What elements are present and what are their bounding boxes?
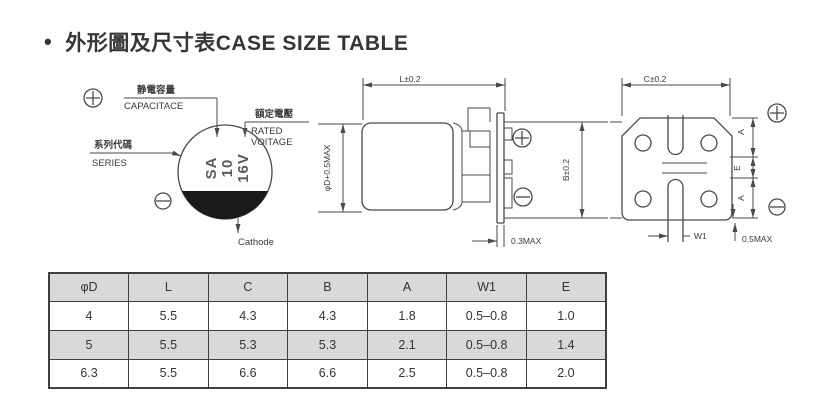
table-row: 6.3 5.5 6.6 6.6 2.5 0.5–0.8 2.0 [49, 359, 606, 388]
capacitor-side-view-diagram: L±0.2 B±0.2 [310, 70, 610, 265]
terminal-hole [701, 135, 717, 151]
dim-label-A-bottom: A [736, 195, 746, 201]
dim-label-L: L±0.2 [399, 74, 420, 84]
table-cell: 2.1 [367, 330, 447, 359]
seating-plate [497, 113, 512, 223]
minus-polarity-icon [155, 193, 171, 209]
table-cell: 4.3 [208, 301, 288, 330]
table-cell: 0.5–0.8 [447, 330, 527, 359]
table-cell: 6.3 [49, 359, 129, 388]
rated-voltage-label-cn: 額定電壓 [254, 108, 294, 120]
terminal-hole [635, 191, 651, 207]
minus-polarity-icon [514, 188, 532, 206]
table-header-cell: C [208, 273, 288, 301]
capacitor-bottom-view-diagram: C±0.2 A E A W1 [610, 70, 834, 265]
face-outline [504, 122, 608, 218]
series-label-cn: 系列代碼 [94, 139, 133, 151]
table-row: 4 5.5 4.3 4.3 1.8 0.5–0.8 1.0 [49, 301, 606, 330]
cathode-label: Cathode [238, 237, 274, 248]
table-cell: 0.5–0.8 [447, 301, 527, 330]
datasheet-page: • 外形圖及尺寸表CASE SIZE TABLE 静電容量 CAPACITACE… [0, 0, 834, 408]
dim-label-W1: W1 [694, 231, 707, 241]
marking-series-text: SA [203, 157, 220, 180]
dim-label-E: E [732, 165, 742, 171]
table-cell: 2.0 [526, 359, 606, 388]
terminal-hole [701, 191, 717, 207]
plus-polarity-icon [513, 129, 531, 147]
terminal-gap-lines [662, 163, 707, 173]
capacitance-label-en: CAPACITACE [124, 101, 183, 112]
table-cell: 1.0 [526, 301, 606, 330]
capacitor-can-outline [362, 123, 453, 210]
dim-label-A-top: A [736, 129, 746, 135]
dim-label-plate: 0.3MAX [511, 236, 542, 246]
table-cell: 5 [49, 330, 129, 359]
table-row: 5 5.5 5.3 5.3 2.1 0.5–0.8 1.4 [49, 330, 606, 359]
table-cell: 0.5–0.8 [447, 359, 527, 388]
table-header-cell: L [129, 273, 209, 301]
case-size-table: φD L C B A W1 E 4 5.5 4.3 4.3 1.8 0.5–0.… [48, 272, 607, 389]
capacitance-label-cn: 静電容量 [137, 84, 176, 96]
table-cell: 6.6 [208, 359, 288, 388]
table-cell: 4.3 [288, 301, 368, 330]
section-title: • 外形圖及尺寸表CASE SIZE TABLE [44, 27, 408, 57]
cathode-lead-slot [668, 180, 683, 243]
dim-label-B: B±0.2 [561, 159, 571, 181]
minus-polarity-icon [769, 199, 785, 215]
can-seal-groove [453, 123, 462, 210]
table-header-cell: W1 [447, 273, 527, 301]
cathode-stripe [182, 191, 268, 219]
bullet-icon: • [44, 31, 52, 53]
dim-label-lead: 0.5MAX [742, 234, 773, 244]
table-cell: 2.5 [367, 359, 447, 388]
table-cell: 6.6 [288, 359, 368, 388]
dim-label-C: C±0.2 [644, 74, 667, 84]
marking-capacitance-text: 10 [219, 159, 236, 178]
series-label-en: SERIES [92, 158, 127, 169]
table-cell: 5.3 [208, 330, 288, 359]
table-header-cell: E [526, 273, 606, 301]
table-cell: 5.5 [129, 359, 209, 388]
rated-voltage-label-en1: RATED [251, 126, 283, 137]
table-header-cell: A [367, 273, 447, 301]
table-cell: 5.5 [129, 330, 209, 359]
anode-lead-slot [668, 115, 683, 155]
table-header-cell: B [288, 273, 368, 301]
table-cell: 5.3 [288, 330, 368, 359]
terminal-hole [635, 135, 651, 151]
series-arrow [90, 153, 181, 156]
table-header-cell: φD [49, 273, 129, 301]
marking-voltage-text: 16V [235, 153, 252, 183]
terminal-bracket [462, 108, 490, 202]
table-cell: 5.5 [129, 301, 209, 330]
table-cell: 4 [49, 301, 129, 330]
table-cell: 1.4 [526, 330, 606, 359]
dim-label-D: φD+0.5MAX [322, 144, 332, 191]
table-cell: 1.8 [367, 301, 447, 330]
plus-polarity-icon [768, 104, 786, 122]
page-title: 外形圖及尺寸表CASE SIZE TABLE [65, 27, 408, 57]
capacitor-marking-diagram: 静電容量 CAPACITACE 額定電壓 RATED VOITAGE 系列代碼 … [60, 75, 310, 260]
table-header-row: φD L C B A W1 E [49, 273, 606, 301]
plus-polarity-icon [84, 89, 102, 107]
